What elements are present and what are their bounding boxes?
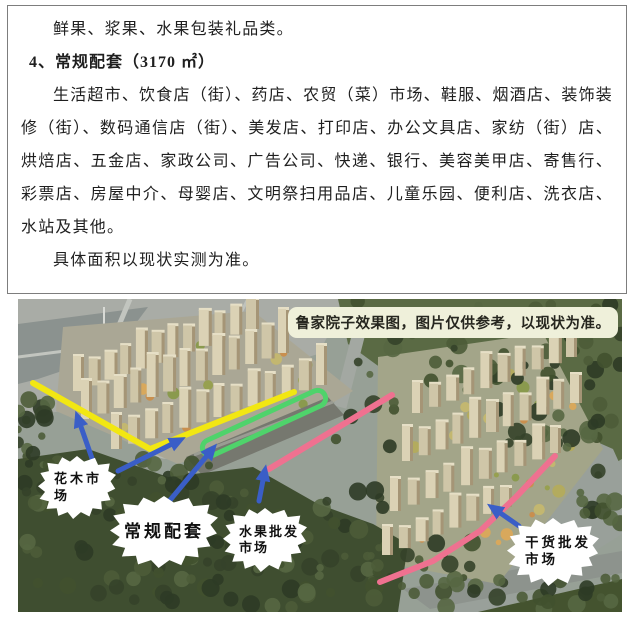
text-section: 鲜果、浆果、水果包装礼品类。 4、常规配套（3170 ㎡） 生活超市、饮食店（街…	[7, 5, 627, 294]
figure-caption: 鲁家院子效果图，图片仅供参考，以现状为准。	[288, 307, 618, 338]
label-line: 干货批发	[525, 535, 599, 552]
label-line: 水果批发	[239, 524, 307, 540]
label-line: 常规配套	[110, 521, 218, 542]
paragraph-intro: 鲜果、浆果、水果包装礼品类。	[21, 13, 613, 46]
paragraph-note: 具体面积以现状实测为准。	[21, 244, 613, 277]
paragraph-body: 生活超市、饮食店（街）、药店、农贸（菜）市场、鞋服、烟酒店、装饰装修（街）、数码…	[21, 79, 613, 244]
aerial-render-figure: 鲁家院子效果图，图片仅供参考，以现状为准。 花木市 场 常规配套 水果批发 市场…	[18, 299, 622, 612]
document-page: 鲜果、浆果、水果包装礼品类。 4、常规配套（3170 ㎡） 生活超市、饮食店（街…	[0, 0, 640, 624]
figure-caption-text: 鲁家院子效果图，图片仅供参考，以现状为准。	[296, 312, 611, 333]
section-heading: 4、常规配套（3170 ㎡）	[21, 46, 613, 79]
label-line: 花木市	[54, 471, 116, 487]
